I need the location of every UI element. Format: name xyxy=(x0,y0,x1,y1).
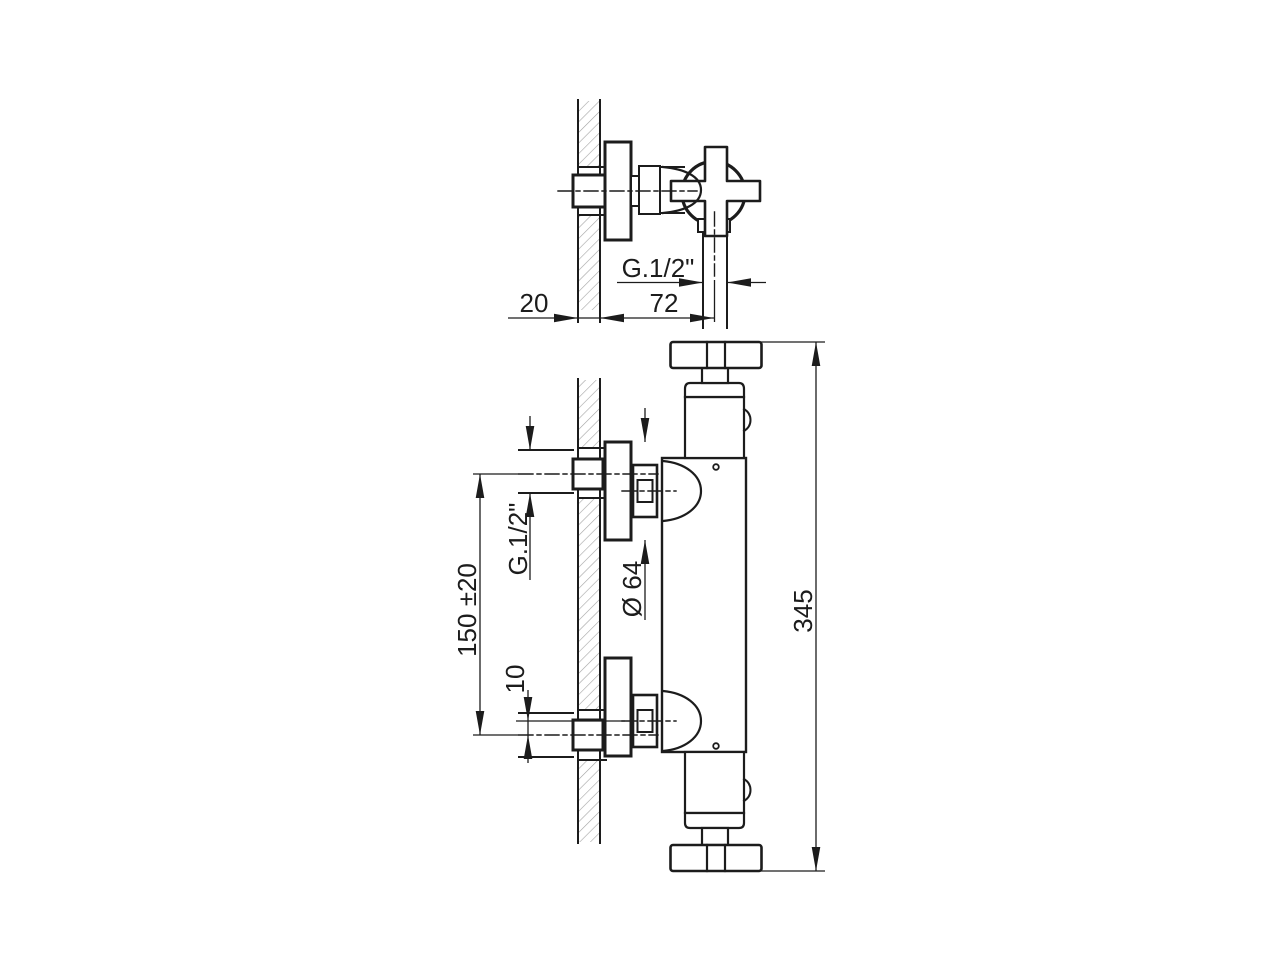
wall-section-front-view xyxy=(579,380,600,842)
dim-10-label: 10 xyxy=(500,665,530,694)
dimensions-front-view xyxy=(473,342,825,871)
lower-cap xyxy=(685,813,744,828)
dim-20-label: 20 xyxy=(520,288,549,318)
dim-dia64-label: Ø 64 xyxy=(617,561,647,617)
lower-cartridge xyxy=(685,752,744,813)
lower-handle-stem xyxy=(702,828,728,845)
dim-150-label: 150 ±20 xyxy=(452,563,482,657)
upper-supply-stub xyxy=(519,450,573,493)
front-thread-label: G.1/2" xyxy=(503,503,533,576)
drawing-canvas: G.1/2" 20 72 G.1/2" Ø 64 150 ±20 10 345 xyxy=(0,0,1280,960)
upper-cap xyxy=(685,383,744,397)
technical-drawing: G.1/2" 20 72 G.1/2" Ø 64 150 ±20 10 345 xyxy=(0,0,1280,960)
lower-handle xyxy=(671,845,762,871)
upper-handle-stem xyxy=(702,367,728,383)
top-thread-label: G.1/2" xyxy=(622,253,695,283)
dim-345-label: 345 xyxy=(788,589,818,632)
dim-72-label: 72 xyxy=(650,288,679,318)
union-step xyxy=(639,166,660,214)
lower-escutcheon xyxy=(605,658,631,756)
upper-cartridge xyxy=(685,397,744,458)
upper-handle xyxy=(671,342,762,368)
mixer-body xyxy=(662,458,746,752)
